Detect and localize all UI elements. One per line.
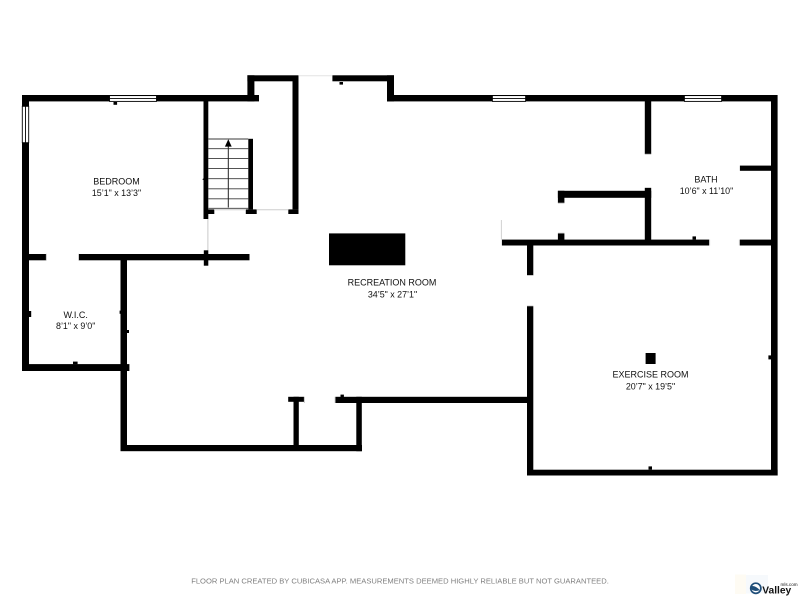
svg-text:BEDROOM: BEDROOM <box>93 176 140 186</box>
svg-text:mls.com: mls.com <box>781 582 798 587</box>
svg-text:W.I.C.: W.I.C. <box>63 310 88 320</box>
svg-text:BATH: BATH <box>694 174 717 184</box>
svg-text:EXERCISE ROOM: EXERCISE ROOM <box>612 369 688 379</box>
svg-text:20’7" x 19’5": 20’7" x 19’5" <box>626 381 675 391</box>
svg-text:34’5" x 27’1": 34’5" x 27’1" <box>368 290 417 300</box>
svg-text:15’1" x 13’3": 15’1" x 13’3" <box>92 188 141 198</box>
svg-text:8’1" x 9’0": 8’1" x 9’0" <box>56 321 95 331</box>
svg-text:RECREATION ROOM: RECREATION ROOM <box>348 277 437 287</box>
svg-text:10’6" x 11’10": 10’6" x 11’10" <box>680 186 734 196</box>
svg-text:FLOOR PLAN CREATED BY CUBICASA: FLOOR PLAN CREATED BY CUBICASA APP. MEAS… <box>191 576 609 585</box>
